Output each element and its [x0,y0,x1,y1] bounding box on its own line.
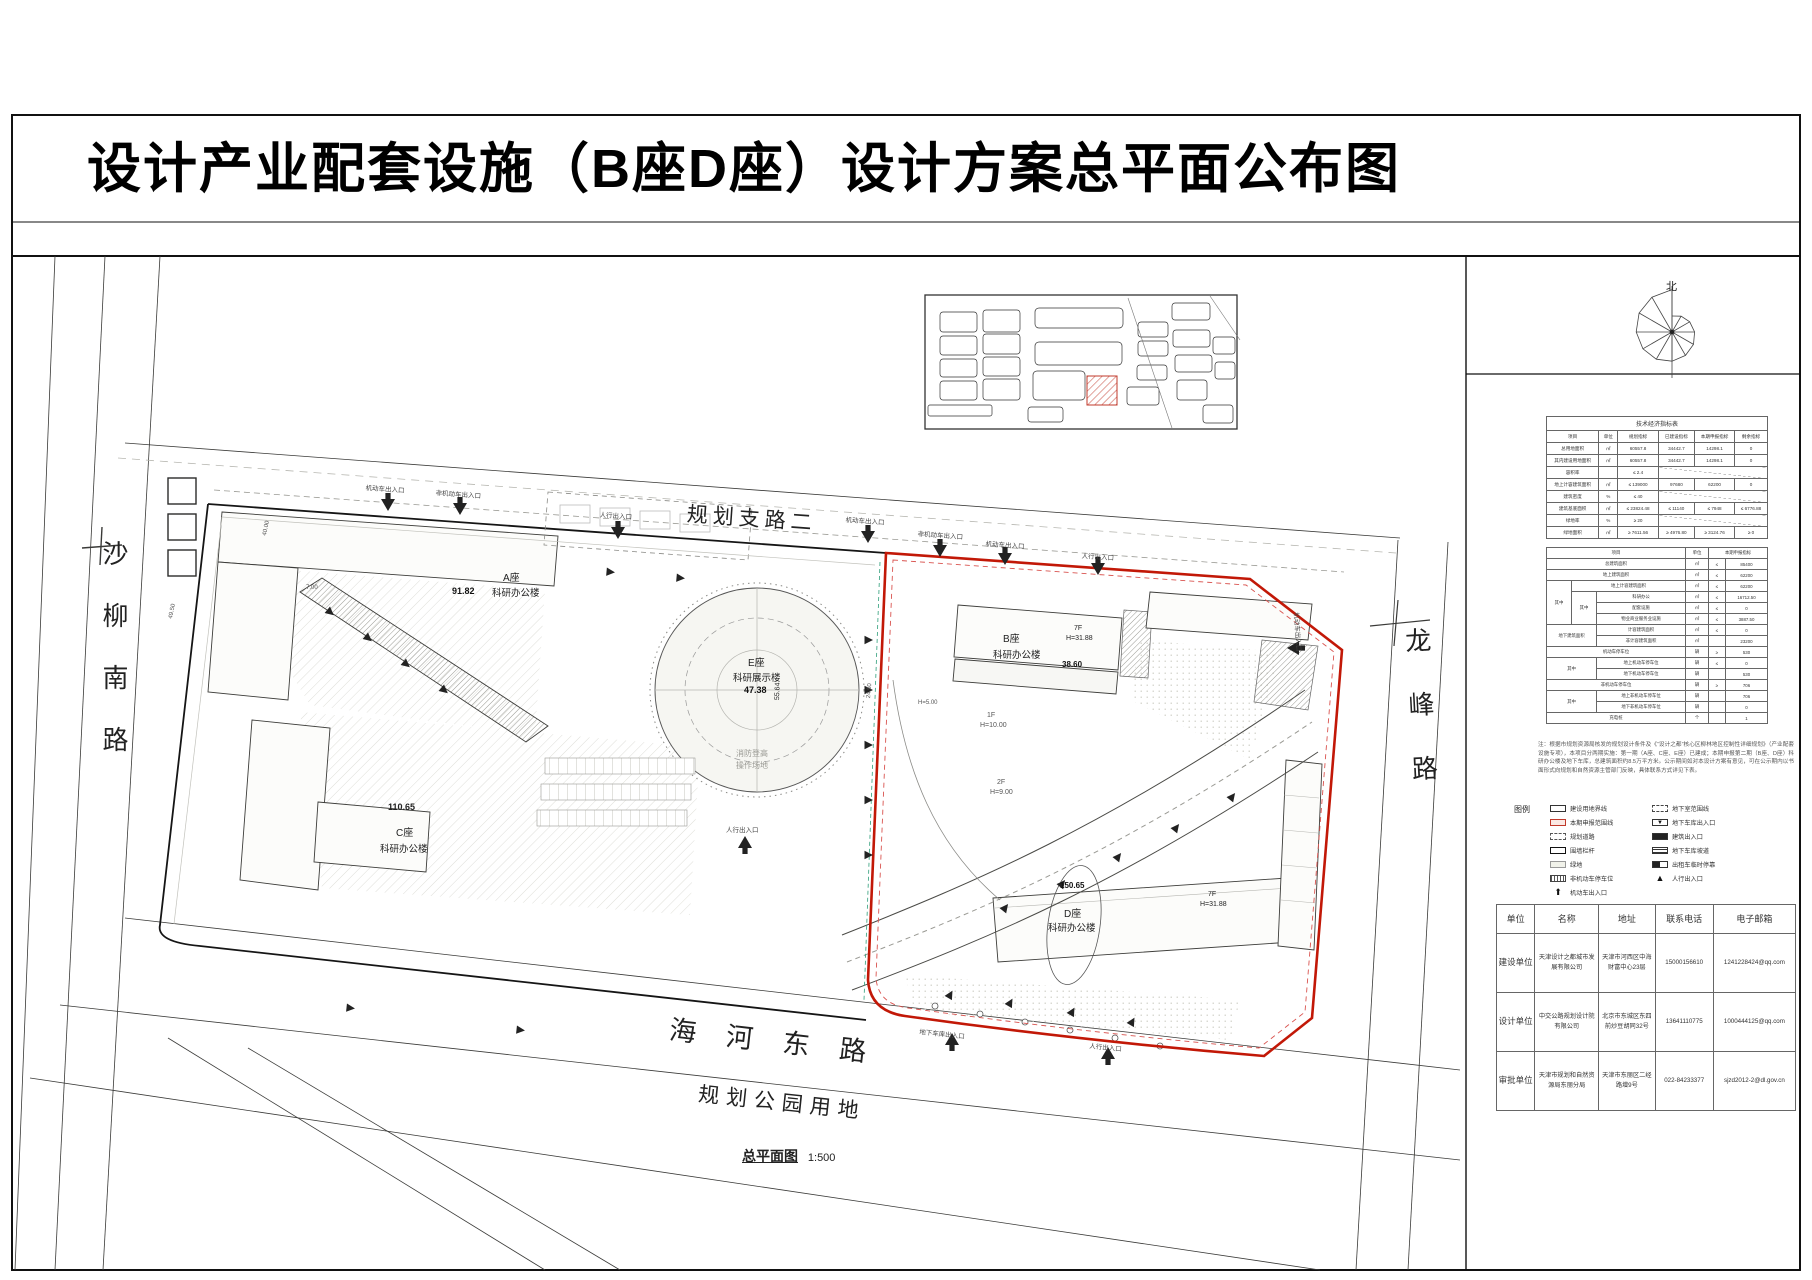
anno-700: 7.00 [306,585,318,591]
contact-header-row: 单位 名称 地址 联系电话 电子邮箱 [1497,905,1796,934]
legend-item: ▲人行出入口 [1652,874,1703,883]
legend-item: 建筑出入口 [1652,832,1703,841]
caption-name: 总平面图 [742,1148,798,1164]
building-entry-icon [1652,833,1668,840]
pedestrian-entry-arrow-icon: ▲ [1652,875,1668,882]
building-d-height: H=31.88 [1200,901,1227,908]
legend-item: 出租车临时停靠 [1652,860,1715,869]
fire-lane-label-1: 消防登高 [736,748,768,759]
road-shaliu-south [15,256,160,1270]
caption-scale: 1:500 [808,1152,836,1164]
building-c-dim: 110.65 [388,802,415,812]
building-b-dim: 38.60 [1062,660,1082,669]
planned-road-icon [1550,833,1566,840]
compass-rose [1636,286,1694,378]
building-b-type: 科研办公楼 [993,647,1041,661]
anno-1f-h: H=10.00 [980,722,1007,729]
parcel-bd [842,553,1342,1056]
building-a-type: 科研办公楼 [492,585,540,599]
legend-item: 地下室范围线 [1652,804,1709,813]
building-b-height: H=31.88 [1066,635,1093,642]
legend-item: ▼地下车库出入口 [1652,818,1715,827]
legend-item: 本期申报范围线 [1550,818,1613,827]
basement-line-icon [1652,805,1668,812]
tech-table-title: 技术经济指标表 [1547,417,1768,431]
legend-item: 非机动车停车位 [1550,874,1613,883]
legend-item: 地下车库坡道 [1652,846,1709,855]
building-c-type: 科研办公楼 [380,841,428,855]
building-b-name: B座 [1003,630,1020,645]
declared-scope-icon [1550,819,1566,826]
fence-icon [1550,847,1566,854]
public-notice-note: 注：根据市规划资源局核发的规划设计条件及《“设计之都”核心区柳林地区控制性详细规… [1538,741,1794,776]
compass-north-label: 北 [1666,278,1677,294]
small-squares [168,478,196,576]
tech-indicator-table: 技术经济指标表 项目 单位 规划指标 已建设指标 本期申报指标 剩余指标 总用地… [1546,416,1768,539]
building-e-dim2: 55.64 [774,682,782,700]
sheet-title: 设计产业配套设施（B座D座）设计方案总平面公布图 [22,124,1466,203]
road-label-shaliu-south: 沙柳南路 [96,540,133,788]
building-b-floors: 7F [1074,625,1082,632]
garage-entry-icon: ▼ [1652,819,1668,826]
key-map-site-highlight [1087,376,1117,405]
drawing-caption: 总平面图 1:500 [742,1146,835,1166]
building-c-name: C座 [396,824,413,839]
contact-row-approval: 审批单位 天津市规划和自然资源局东丽分局 天津市东丽区二经路增9号 022-84… [1497,1052,1796,1111]
contact-row-design: 设计单位 中交公路规划设计院有限公司 北京市东城区东四前炒豆胡同32号 1364… [1497,993,1796,1052]
building-d-type: 科研办公楼 [1048,920,1096,934]
contact-table: 单位 名称 地址 联系电话 电子邮箱 建设单位 天津设计之都城市发展有限公司 天… [1496,904,1796,1111]
building-d [993,760,1322,988]
building-d-dim: 150.65 [1060,881,1084,890]
contact-row-construction: 建设单位 天津设计之都城市发展有限公司 天津市河西区中海财富中心23层 1500… [1497,934,1796,993]
anno-2f-h: H=9.00 [990,789,1013,796]
legend-item: 建设用地界线 [1550,804,1607,813]
legend-item: 围墙栏杆 [1550,846,1595,855]
entrance-ped-3: 人行出入口 [726,824,759,834]
legend-item: 规划道路 [1550,832,1595,841]
green-space-icon [1550,861,1566,868]
building-d-floors: 7F [1208,891,1216,898]
anno-2f: 2F [997,779,1005,786]
legend-item: 绿地 [1550,860,1582,869]
building-e-name: E座 [748,654,765,669]
garage-ramp-icon [1652,847,1668,854]
building-d-name: D座 [1064,905,1081,920]
anno-h5: H=5.00 [918,700,938,706]
building-e-type: 科研展示楼 [733,670,781,684]
building-a-dim: 91.82 [452,586,475,596]
building-e-dim: 47.38 [744,685,767,695]
legend-item: ⬆机动车出入口 [1550,888,1607,897]
legend-title: 图例 [1514,804,1530,815]
key-map [925,295,1240,429]
taxi-stop-icon [1652,861,1668,868]
vehicle-entry-arrow-icon: ⬆ [1550,889,1566,896]
parking-rows [537,758,695,826]
fire-lane-label-2: 操作场地 [736,760,768,771]
site-plan-sheet: { "title": "设计产业配套设施（B座D座）设计方案总平面公布图", "… [0,0,1812,1280]
building-a-name: A座 [503,569,520,584]
bike-parking-icon [1550,875,1566,882]
boundary-line-icon [1550,805,1566,812]
anno-1f: 1F [987,712,995,719]
detail-indicator-table: 项目 单位 本期申报指标 总建筑面积㎡≤85400 地上建筑面积㎡≤62200 … [1546,547,1768,724]
